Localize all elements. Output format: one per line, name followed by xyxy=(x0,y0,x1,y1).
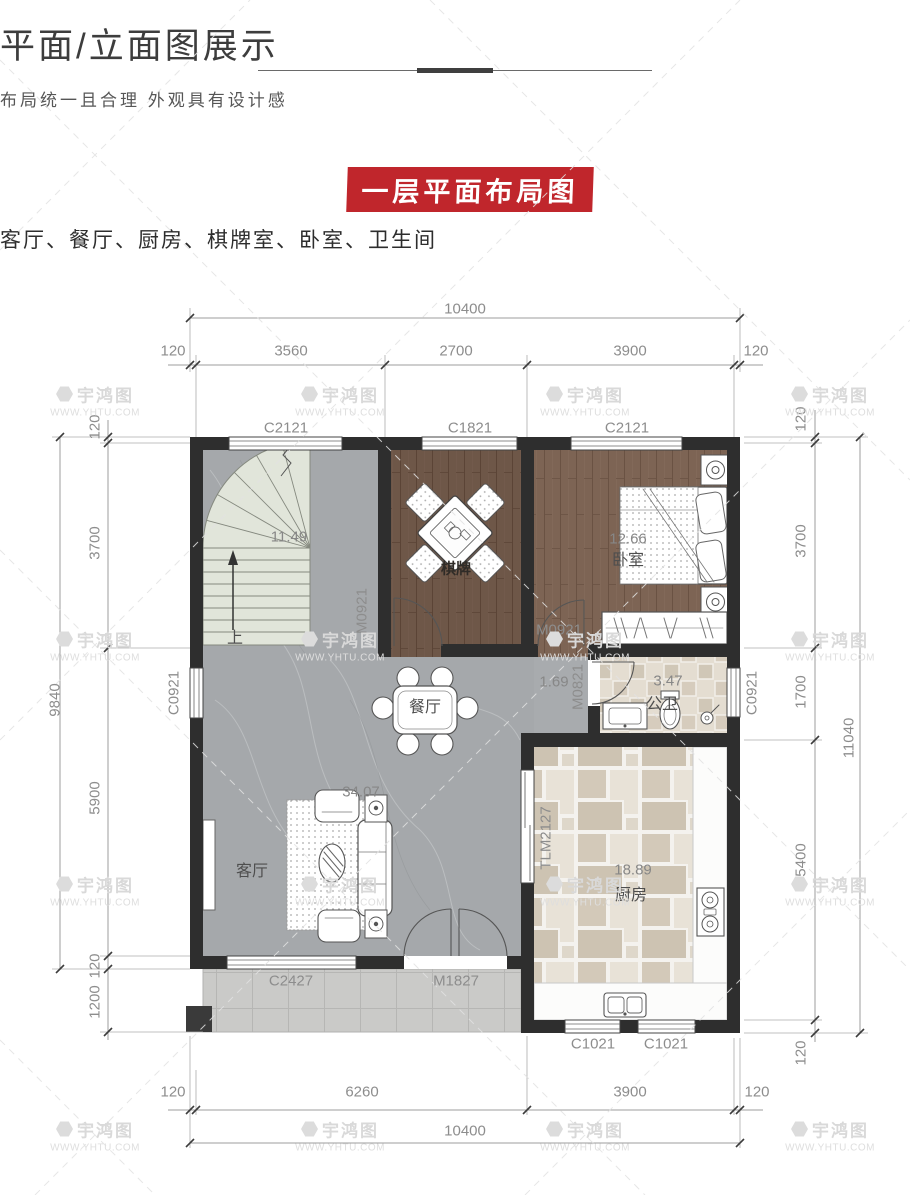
porch-column xyxy=(186,1006,212,1032)
wall-mahjong-bedroom xyxy=(521,437,534,657)
stove xyxy=(697,888,724,936)
wardrobe xyxy=(602,612,727,644)
armchair xyxy=(318,910,360,942)
wall-south-kitchen xyxy=(521,1020,740,1033)
marble-floor-strip xyxy=(521,657,534,733)
stair-flight xyxy=(203,548,310,645)
porch-tile-floor xyxy=(203,969,521,1032)
bed xyxy=(620,487,727,584)
floor-plan xyxy=(0,0,910,1195)
wall-stair-mahjong xyxy=(378,437,391,657)
side-table xyxy=(365,910,387,938)
nightstand xyxy=(701,455,730,485)
page: 平面/立面图展示 布局统一且合理 外观具有设计感 一层平面布局图 客厅、餐厅、厨… xyxy=(0,0,910,1195)
wall-bathroom-south xyxy=(521,733,740,747)
pillow xyxy=(695,491,727,535)
side-table xyxy=(365,795,387,822)
sofa-set xyxy=(287,790,392,942)
kitchen-sink xyxy=(604,993,646,1017)
tv-cabinet xyxy=(203,820,215,910)
kitchen-counter-east xyxy=(693,747,727,1020)
armchair xyxy=(315,790,359,822)
sliding-door-tlm2127 xyxy=(521,770,534,883)
dining-table xyxy=(393,686,457,734)
sofa xyxy=(358,820,392,916)
